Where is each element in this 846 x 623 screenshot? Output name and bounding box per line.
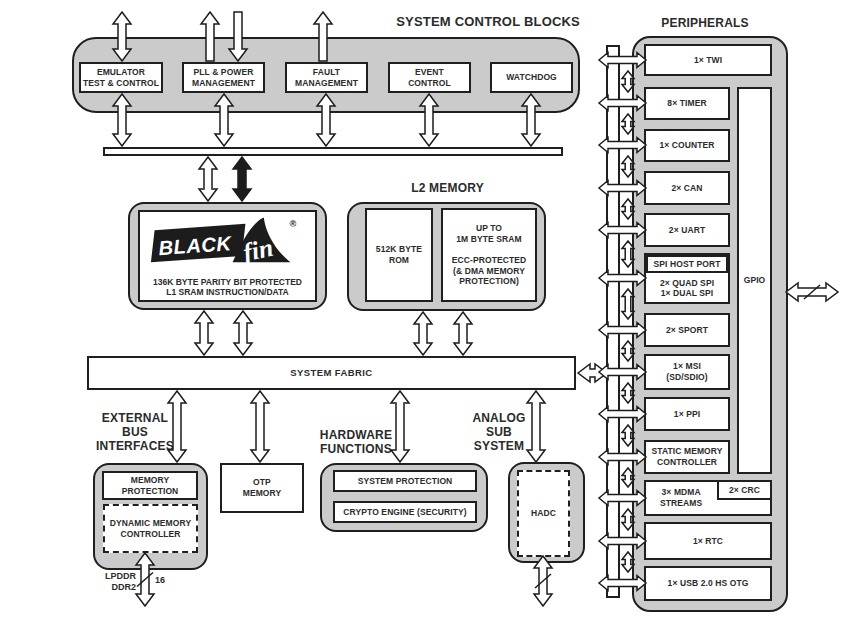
l2-fabric-arrow-1-icon [414,312,432,355]
blackfin-logo-fin-text: fin [240,233,275,268]
external-bus-interfaces-title: EXTERNAL BUS INTERFACES [95,412,175,453]
gpio-external-bus-arrow-icon [786,283,838,301]
block-static-memory-controller: STATIC MEMORY CONTROLLER [644,440,730,474]
ddr-bus-width-label: 16 [155,575,173,586]
core-fabric-arrow-2-icon [234,311,252,355]
block-otp-memory: OTP MEMORY [220,463,304,513]
block-fault-management: FAULT MANAGEMENT [285,62,368,93]
system-control-blocks-title: SYSTEM CONTROL BLOCKS [340,15,580,30]
core-memory-label: 136K BYTE PARITY BIT PROTECTED L1 SRAM I… [140,277,315,297]
hadc-external-arrow-icon [534,556,552,606]
bus-width-slash-icon [535,574,551,588]
ddr-types-label: LPDDR DDR2 [98,571,136,593]
peripheral-bus-bar [606,45,620,598]
analog-subsystem-title: ANALOG SUB SYSTEM [468,412,530,453]
block-diagram: SYSTEM CONTROL BLOCKS EMULATOR TEST & CO… [0,0,846,623]
bus-width-slash-icon [137,573,153,587]
fabric-otp-arrow-icon [251,391,269,462]
block-can: 2× CAN [644,171,730,205]
l2-memory-title: L2 MEMORY [390,182,505,196]
block-sport: 2× SPORT [644,313,730,347]
peripherals-title: PERIPHERALS [650,17,760,31]
block-crc: 2× CRC [717,480,772,500]
block-hadc: HADC [517,470,570,557]
block-crypto-engine: CRYPTO ENGINE (SECURITY) [333,501,477,523]
block-dynamic-memory-controller: DYNAMIC MEMORY CONTROLLER [103,504,198,553]
hardware-functions-title: HARDWARE FUNCTIONS [318,429,394,457]
bus-core-arrow-icon [199,157,217,201]
block-twi: 1× TWI [644,44,772,76]
block-emulator-test-control: EMULATOR TEST & CONTROL [79,62,163,93]
system-fabric-bar: SYSTEM FABRIC [87,356,576,390]
block-uart: 2× UART [644,213,730,247]
core-fabric-arrow-1-icon [195,311,213,355]
fabric-peripheral-bus-arrow-icon [578,364,607,382]
block-timer: 8× TIMER [644,87,730,120]
block-system-protection: SYSTEM PROTECTION [333,470,477,492]
block-ppi: 1× PPI [644,397,730,431]
block-rtc: 1× RTC [644,522,772,560]
system-bus-bar [103,147,563,156]
block-msi: 1× MSI (SD/SDIO) [644,354,730,390]
block-watchdog: WATCHDOG [490,62,573,93]
block-pll-power-management: PLL & POWER MANAGEMENT [182,62,265,93]
block-counter: 1× COUNTER [644,129,730,162]
block-rom: 512K BYTE ROM [365,208,433,302]
block-memory-protection: MEMORY PROTECTION [102,471,198,500]
blackfin-logo: BLACK fin ® [150,214,306,274]
block-usb: 1× USB 2.0 HS OTG [644,566,772,601]
block-sram: UP TO 1M BYTE SRAM ECC-PROTECTED (& DMA … [441,208,537,302]
l2-fabric-arrow-2-icon [454,312,472,355]
blackfin-logo-registered-mark: ® [289,219,296,229]
block-spi-host-port: SPI HOST PORT [646,255,728,273]
bus-width-slash-icon [804,285,820,299]
block-gpio: GPIO [737,87,772,474]
bus-core-arrow-solid-icon [233,157,251,201]
block-event-control: EVENT CONTROL [388,62,471,93]
